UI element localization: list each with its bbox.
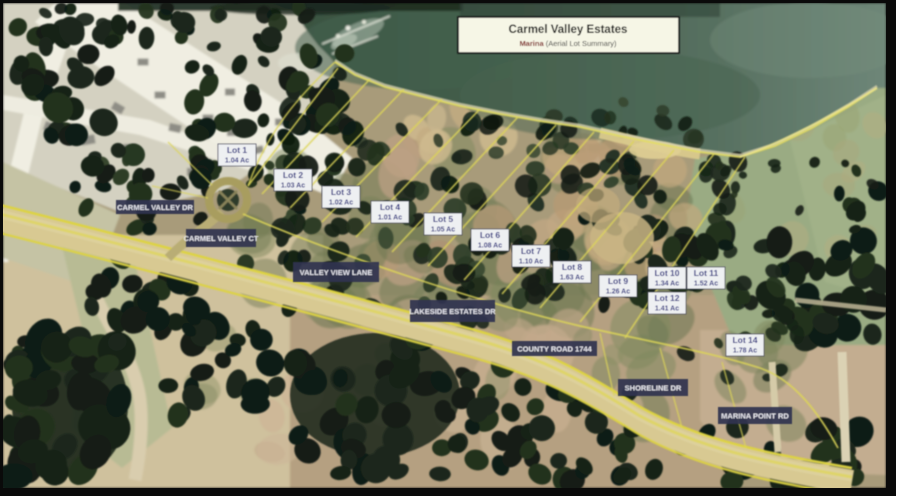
svg-text:Lot 12: Lot 12 xyxy=(654,293,679,303)
svg-text:Lot 6: Lot 6 xyxy=(480,230,501,240)
svg-text:1.10 Ac: 1.10 Ac xyxy=(519,259,543,266)
svg-text:SHORELINE DR: SHORELINE DR xyxy=(625,384,682,393)
svg-text:Lot 5: Lot 5 xyxy=(433,214,454,224)
svg-text:Lot 10: Lot 10 xyxy=(654,268,679,278)
svg-text:COUNTY ROAD 1744: COUNTY ROAD 1744 xyxy=(517,345,592,354)
svg-text:1.78 Ac: 1.78 Ac xyxy=(733,348,757,355)
svg-text:MARINA POINT RD: MARINA POINT RD xyxy=(721,412,789,421)
svg-text:1.03 Ac: 1.03 Ac xyxy=(281,183,305,190)
svg-text:1.34 Ac: 1.34 Ac xyxy=(655,281,679,288)
svg-text:CARMEL VALLEY DR: CARMEL VALLEY DR xyxy=(117,203,193,212)
svg-text:1.41 Ac: 1.41 Ac xyxy=(655,306,679,313)
svg-text:VALLEY VIEW LANE: VALLEY VIEW LANE xyxy=(300,268,373,277)
svg-text:CARMEL VALLEY CT: CARMEL VALLEY CT xyxy=(183,234,258,243)
svg-text:1.08 Ac: 1.08 Ac xyxy=(478,243,502,250)
svg-text:Marina (Aerial Lot Summary): Marina (Aerial Lot Summary) xyxy=(519,39,617,48)
svg-text:LAKESIDE ESTATES DR: LAKESIDE ESTATES DR xyxy=(409,307,496,316)
svg-text:1.63 Ac: 1.63 Ac xyxy=(560,275,584,282)
svg-text:Lot 9: Lot 9 xyxy=(608,276,629,286)
svg-text:1.26 Ac: 1.26 Ac xyxy=(606,289,630,296)
svg-text:Lot 11: Lot 11 xyxy=(694,268,719,278)
svg-text:Lot 3: Lot 3 xyxy=(331,187,352,197)
svg-text:1.02 Ac: 1.02 Ac xyxy=(329,200,353,207)
svg-text:Carmel Valley Estates: Carmel Valley Estates xyxy=(509,24,628,36)
svg-text:1.04 Ac: 1.04 Ac xyxy=(225,158,249,165)
svg-text:Lot 1: Lot 1 xyxy=(227,145,248,155)
svg-text:1.52 Ac: 1.52 Ac xyxy=(694,281,718,288)
svg-text:1.05 Ac: 1.05 Ac xyxy=(431,227,455,234)
svg-text:Lot 2: Lot 2 xyxy=(283,170,304,180)
svg-text:Lot 14: Lot 14 xyxy=(732,335,757,345)
svg-text:Lot 7: Lot 7 xyxy=(521,246,542,256)
svg-text:1.01 Ac: 1.01 Ac xyxy=(378,215,402,222)
svg-text:Lot 4: Lot 4 xyxy=(380,202,401,212)
svg-text:Lot 8: Lot 8 xyxy=(562,262,583,272)
